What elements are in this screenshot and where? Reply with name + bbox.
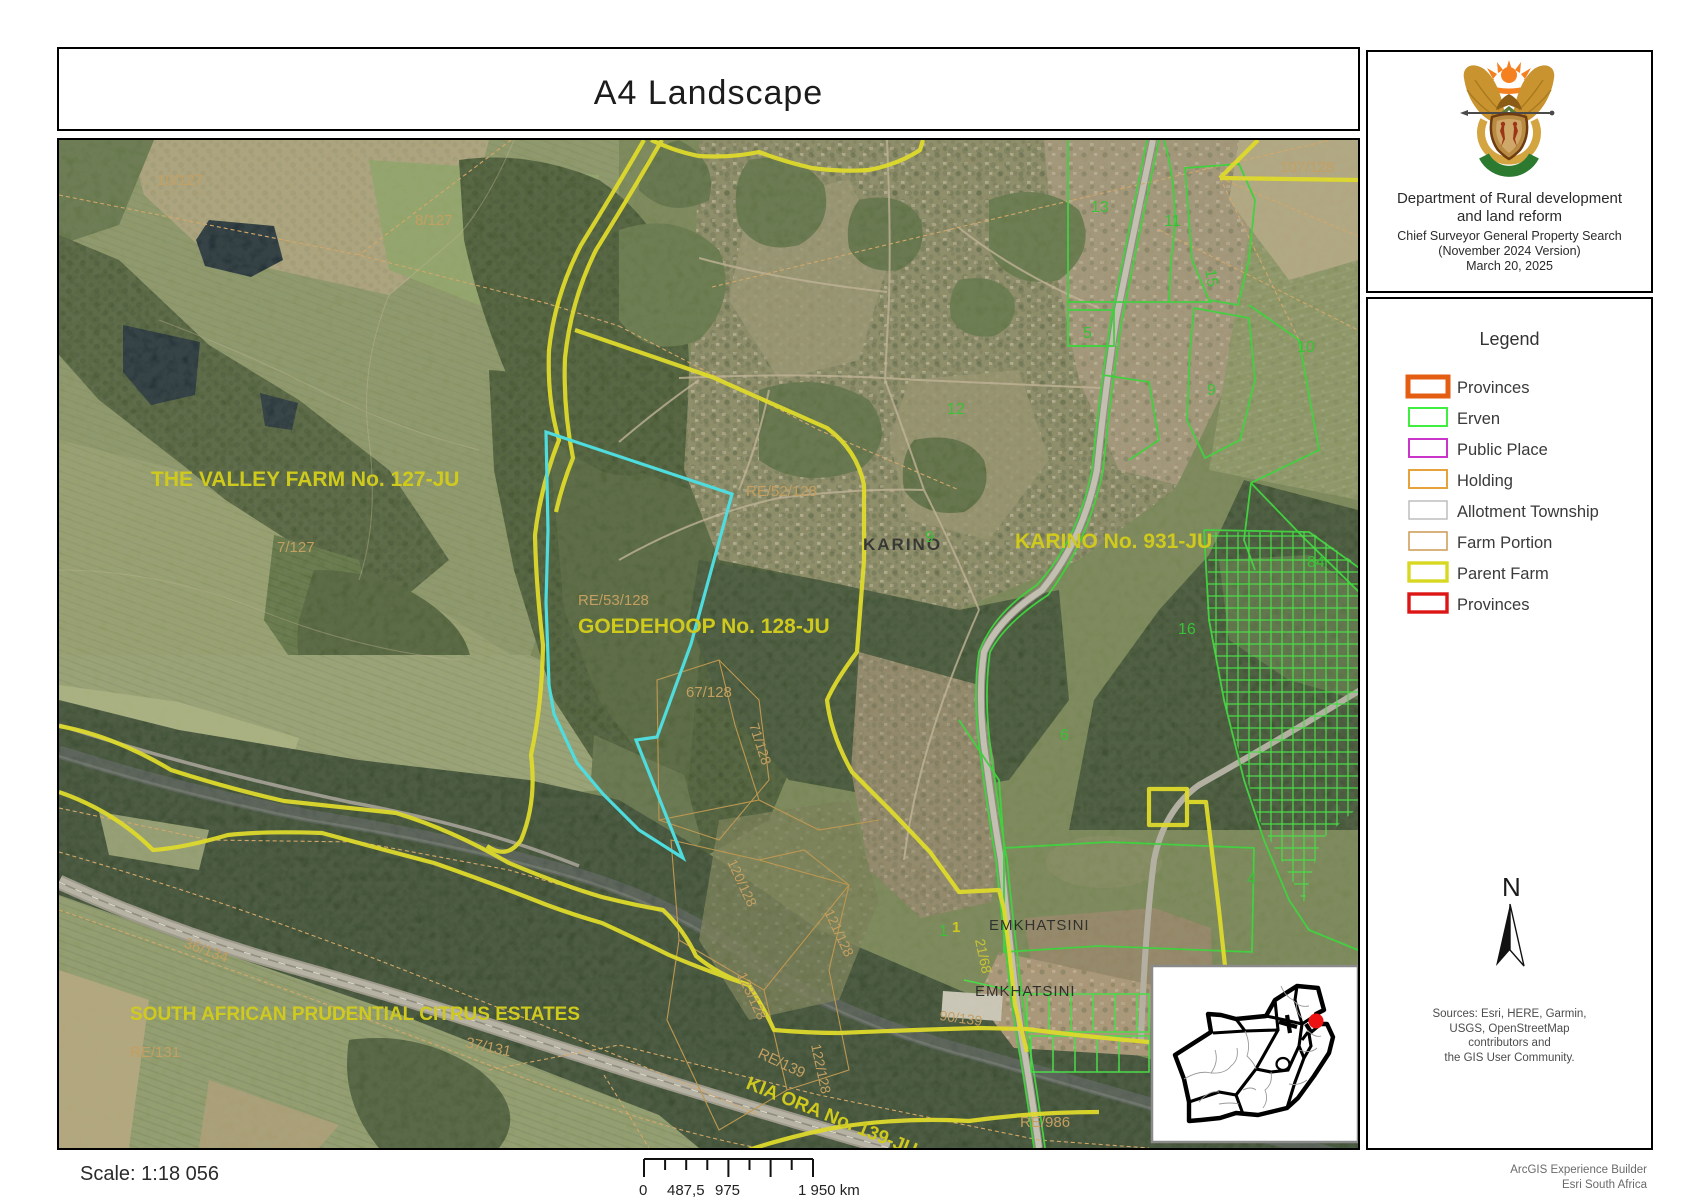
svg-text:N: N <box>1502 874 1521 902</box>
svg-text:Holding: Holding <box>1457 472 1513 490</box>
svg-text:Parent Farm: Parent Farm <box>1457 565 1549 583</box>
svg-text:975: 975 <box>715 1182 740 1198</box>
svg-text:Allotment Township: Allotment Township <box>1457 503 1599 521</box>
svg-text:Erven: Erven <box>1457 410 1500 428</box>
svg-text:487,5: 487,5 <box>667 1182 705 1198</box>
svg-text:0: 0 <box>639 1182 647 1198</box>
svg-text:Public Place: Public Place <box>1457 441 1548 459</box>
svg-text:1 950 km: 1 950 km <box>798 1182 860 1198</box>
svg-text:Farm Portion: Farm Portion <box>1457 534 1552 552</box>
svg-text:Provinces: Provinces <box>1457 379 1529 397</box>
svg-text:Provinces: Provinces <box>1457 596 1529 614</box>
